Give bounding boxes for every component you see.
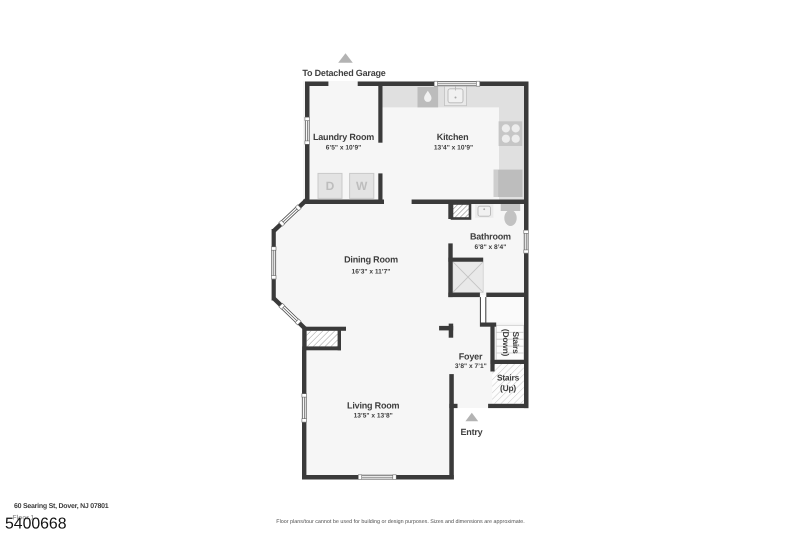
svg-text:Kitchen: Kitchen [437,132,469,142]
svg-text:D: D [326,179,335,193]
svg-text:3’8" x 7’1": 3’8" x 7’1" [455,363,487,370]
svg-text:Stairs(Down): Stairs(Down) [501,329,521,357]
svg-text:Laundry Room: Laundry Room [313,132,374,142]
svg-text:W: W [356,179,368,193]
svg-text:Stairs: Stairs [497,373,520,383]
svg-text:60 Searing St, Dover, NJ 07801: 60 Searing St, Dover, NJ 07801 [14,502,109,510]
svg-text:13’5" x 13’8": 13’5" x 13’8" [354,412,393,419]
svg-text:5400668: 5400668 [5,516,67,533]
svg-text:16’3" x 11’7": 16’3" x 11’7" [352,268,391,275]
svg-text:Dining Room: Dining Room [344,255,398,265]
svg-text:6’8" x 8’4": 6’8" x 8’4" [474,244,506,251]
svg-text:Entry: Entry [460,427,482,437]
svg-text:Foyer: Foyer [459,351,483,361]
svg-text:13’4" x 10’9": 13’4" x 10’9" [434,145,473,152]
svg-text:6’5" x 10’9": 6’5" x 10’9" [326,145,362,152]
svg-text:Living Room: Living Room [347,400,399,410]
svg-text:(Up): (Up) [500,383,516,393]
svg-text:To Detached Garage: To Detached Garage [302,68,385,78]
svg-text:Bathroom: Bathroom [470,232,511,242]
svg-text:Floor plans/tour cannot be use: Floor plans/tour cannot be used for buil… [276,519,524,525]
